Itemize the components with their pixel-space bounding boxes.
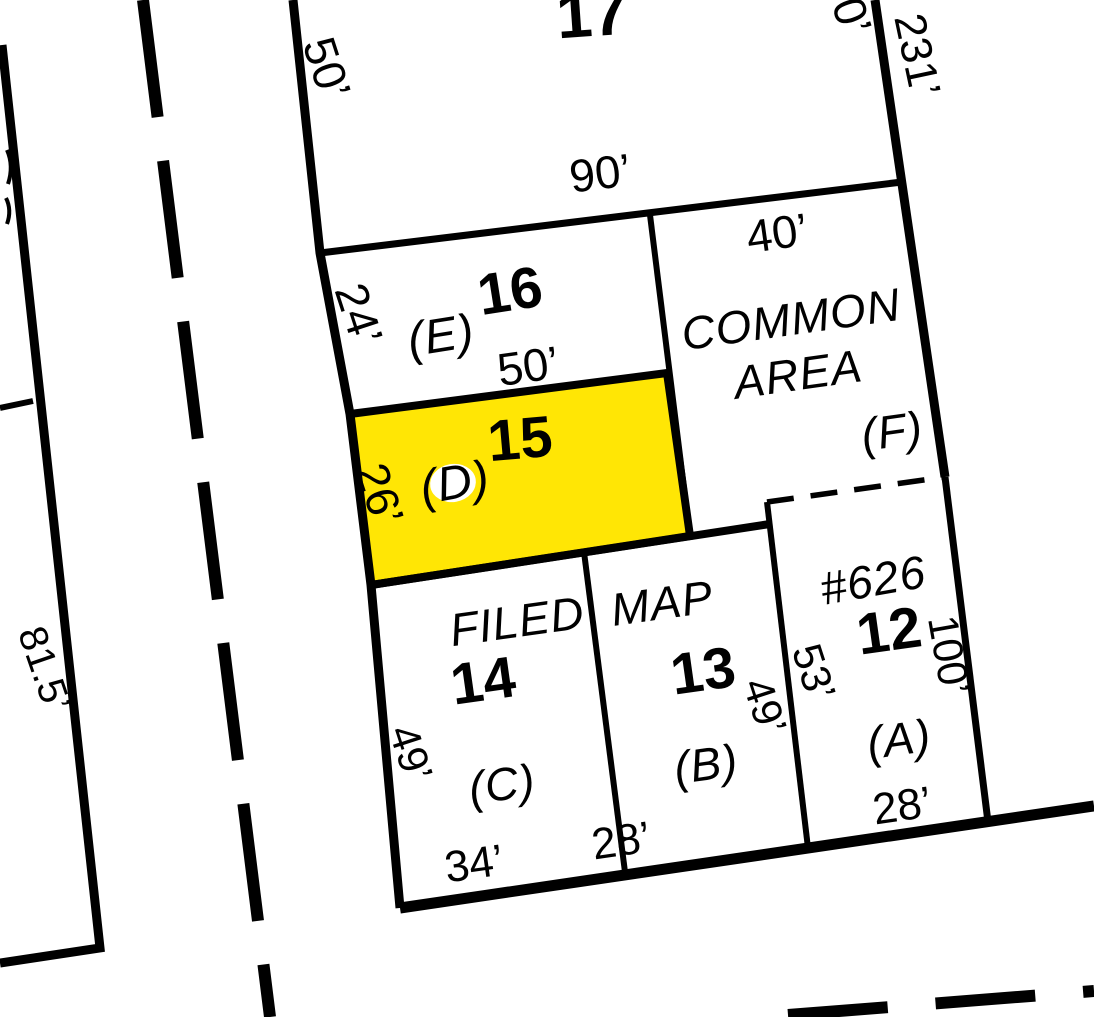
lot12-north-dashed-line <box>767 477 945 502</box>
filed-map-text-left: FILED <box>446 586 587 656</box>
lot17-east-dim: 231’ <box>884 9 949 101</box>
filed-map-text-right: MAP <box>608 570 717 636</box>
edge-label-fragment <box>6 198 9 224</box>
common-area-letter: (F) <box>858 401 926 461</box>
west-block-boundary <box>0 45 100 963</box>
tax-map-canvas: 17 50’ 0’ 231’ 90’ 40’ COMMON AREA (F) 1… <box>0 0 1094 1017</box>
lot13-letter: (B) <box>671 734 742 794</box>
lot16-letter: (E) <box>404 305 478 368</box>
lot13-number-label: 13 <box>667 634 740 707</box>
lot12-letter: (A) <box>864 709 935 769</box>
lot13-south-dim: 28’ <box>589 813 654 870</box>
common-area-north-dim: 40’ <box>743 203 811 263</box>
lot12-east-dim: 100’ <box>919 612 979 698</box>
lot12-number-label: 12 <box>853 594 926 667</box>
lot14-letter: (C) <box>465 754 538 815</box>
lot17-number-label: 17 <box>554 0 630 52</box>
lot14-south-dim: 34’ <box>442 836 507 893</box>
plat-map-svg: 17 50’ 0’ 231’ 90’ 40’ COMMON AREA (F) 1… <box>0 0 1094 1017</box>
lot17-east-dim-partial: 0’ <box>822 0 883 41</box>
lot14-number-label: 14 <box>447 644 520 717</box>
lot15-number-label: 15 <box>485 404 555 474</box>
lot16-number-label: 16 <box>473 254 547 328</box>
cross-street-centerline-dashed <box>788 991 1094 1015</box>
lot17-south-dim: 90’ <box>566 143 633 202</box>
edge-label-fragment <box>7 150 11 184</box>
road-centerline-dashed <box>143 0 270 1017</box>
west-block-lot-line <box>0 401 33 408</box>
lot12-south-dim: 28’ <box>870 778 935 835</box>
lot16-south-dim: 50’ <box>494 336 562 396</box>
